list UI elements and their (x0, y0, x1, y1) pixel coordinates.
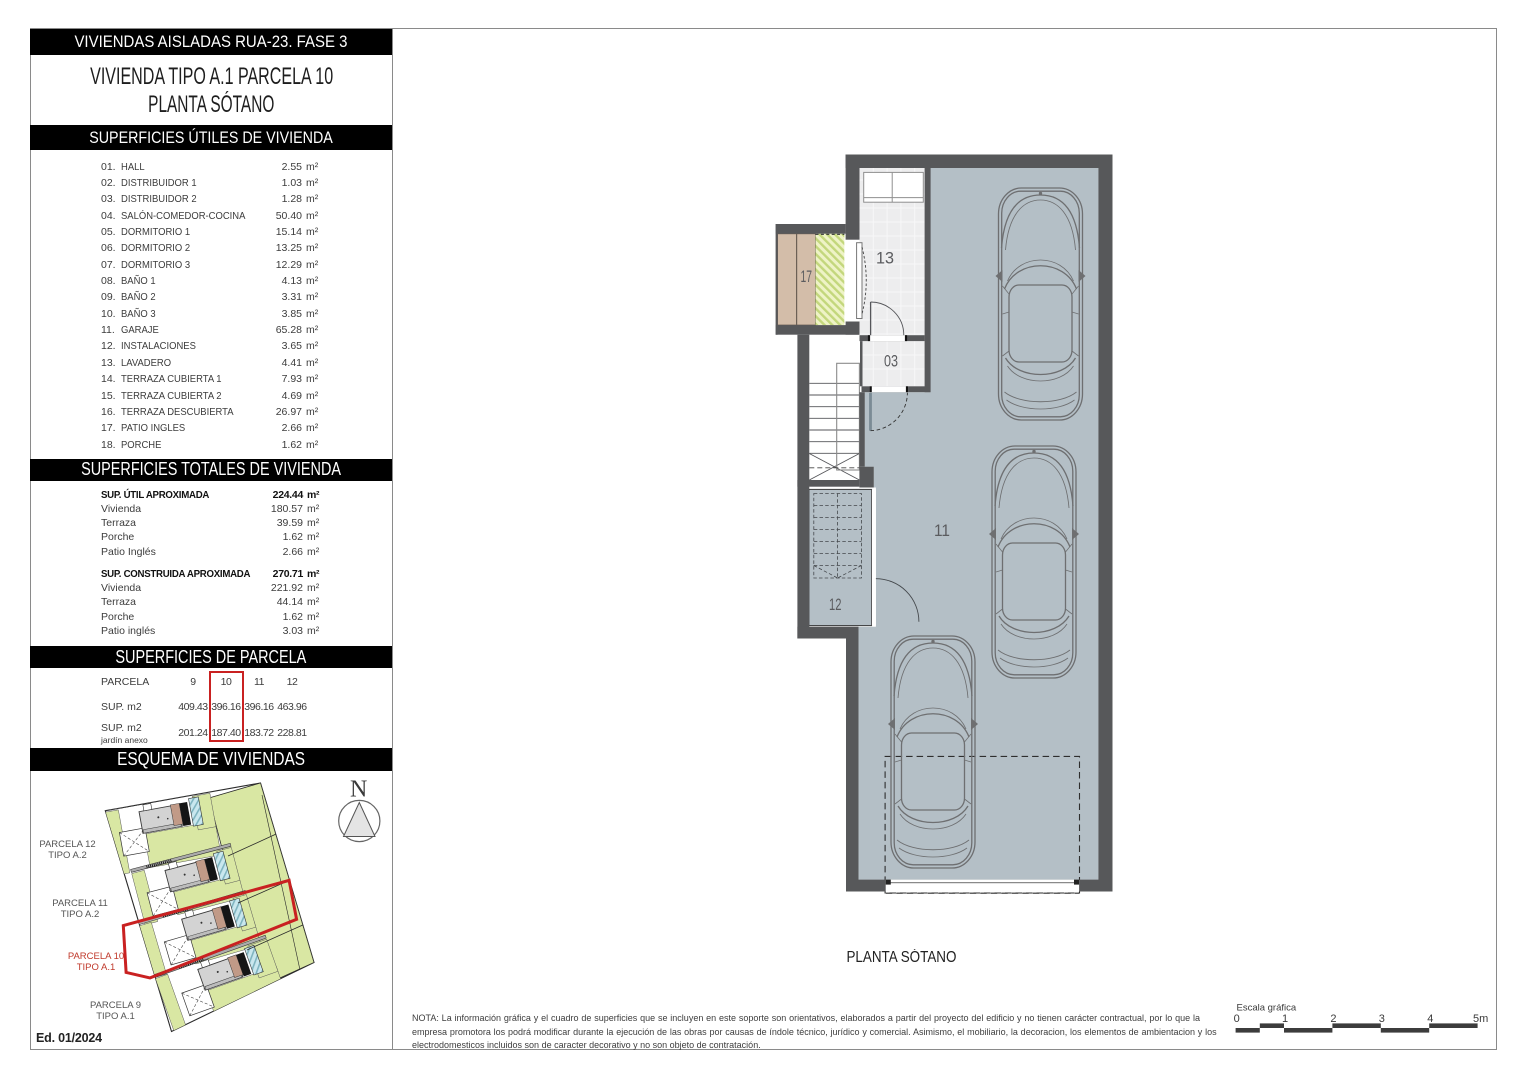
svg-text:17: 17 (801, 268, 813, 286)
svg-text:N: N (350, 777, 367, 803)
svg-text:1: 1 (1282, 1013, 1288, 1025)
svg-text:2: 2 (1330, 1013, 1336, 1025)
svg-text:4: 4 (1427, 1013, 1433, 1025)
svg-text:5m: 5m (1473, 1013, 1488, 1025)
svg-text:12: 12 (829, 596, 842, 614)
svg-text:0: 0 (1234, 1013, 1240, 1025)
svg-text:03: 03 (884, 353, 898, 371)
svg-text:11: 11 (934, 522, 950, 540)
svg-text:3: 3 (1379, 1013, 1385, 1025)
svg-text:13: 13 (876, 250, 894, 268)
svg-text:Escala gráfica: Escala gráfica (1237, 1003, 1297, 1014)
